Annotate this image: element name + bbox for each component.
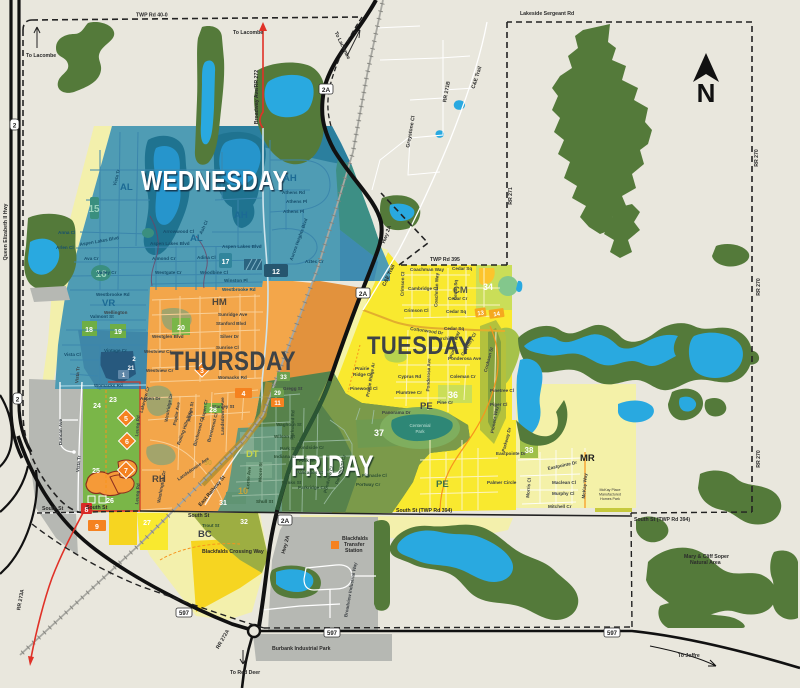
svg-text:Aspen Lakes Blvd: Aspen Lakes Blvd — [150, 241, 190, 246]
svg-text:23: 23 — [109, 397, 117, 404]
svg-text:Centennial: Centennial — [410, 423, 431, 428]
svg-text:RR 271: RR 271 — [508, 187, 514, 205]
svg-text:TWP Rd 395: TWP Rd 395 — [430, 257, 460, 263]
svg-text:Manufactured: Manufactured — [599, 493, 621, 497]
svg-text:18: 18 — [85, 327, 93, 334]
svg-text:Prairie: Prairie — [355, 366, 370, 371]
svg-text:Duncan Ave: Duncan Ave — [58, 418, 63, 445]
svg-text:Crimson Cl: Crimson Cl — [404, 308, 429, 313]
svg-text:Cyprus Rd: Cyprus Rd — [398, 374, 421, 379]
svg-text:Natural Area: Natural Area — [690, 560, 721, 566]
svg-text:Piper Cl: Piper Cl — [490, 402, 507, 407]
svg-text:2A: 2A — [322, 87, 331, 94]
svg-text:Park St: Park St — [299, 458, 315, 463]
svg-text:29: 29 — [274, 391, 281, 397]
svg-text:Athens Rd: Athens Rd — [282, 190, 305, 195]
svg-text:Pinetree Cl: Pinetree Cl — [490, 388, 514, 393]
svg-text:Mitchell Cr: Mitchell Cr — [548, 504, 572, 509]
svg-text:Indiana St: Indiana St — [274, 454, 296, 459]
svg-text:Arlen Cl: Arlen Cl — [56, 245, 74, 250]
svg-text:Landsdowne Ave: Landsdowne Ave — [220, 397, 225, 435]
svg-text:20: 20 — [177, 325, 185, 332]
svg-text:Shull St: Shull St — [256, 499, 274, 504]
svg-text:Sunridge Ave: Sunridge Ave — [218, 312, 248, 317]
svg-text:Westgate Cr: Westgate Cr — [155, 270, 182, 275]
svg-text:RR 270: RR 270 — [754, 149, 760, 167]
svg-text:2: 2 — [13, 123, 17, 130]
svg-text:Parkridge Cr: Parkridge Cr — [298, 485, 326, 490]
svg-text:Vista Cl: Vista Cl — [64, 352, 81, 357]
svg-text:McKay Place: McKay Place — [600, 488, 621, 492]
svg-text:Burbank Industrial Park: Burbank Industrial Park — [272, 646, 331, 652]
svg-text:Westview Cr: Westview Cr — [144, 349, 171, 354]
svg-text:Trout St: Trout St — [202, 523, 220, 528]
svg-text:25: 25 — [92, 468, 100, 475]
svg-text:To Red Deer: To Red Deer — [230, 670, 260, 676]
svg-text:Cedar Sq: Cedar Sq — [452, 266, 472, 271]
svg-text:Pinnacle Cl: Pinnacle Cl — [362, 473, 387, 478]
svg-text:Aspen Lakes Blvd: Aspen Lakes Blvd — [222, 244, 262, 249]
svg-text:Station: Station — [345, 548, 363, 554]
svg-text:Blackfalds Crossing Way: Blackfalds Crossing Way — [202, 549, 264, 555]
svg-text:Womacks Rd: Womacks Rd — [94, 383, 123, 388]
svg-text:Arrowwood Cl: Arrowwood Cl — [163, 229, 194, 234]
svg-text:597: 597 — [327, 631, 338, 637]
svg-text:South St: South St — [86, 505, 108, 511]
svg-text:26: 26 — [106, 498, 114, 505]
svg-text:Park St: Park St — [280, 446, 296, 451]
svg-text:TWP Rd 40-0: TWP Rd 40-0 — [136, 13, 168, 19]
svg-text:Athens Pl: Athens Pl — [286, 199, 307, 204]
svg-text:AH: AH — [234, 210, 248, 221]
svg-text:Coachman Way: Coachman Way — [410, 267, 444, 272]
svg-text:17: 17 — [222, 259, 230, 266]
svg-text:Palmer Circle: Palmer Circle — [487, 480, 517, 485]
svg-text:Valley Cr: Valley Cr — [97, 270, 117, 275]
svg-text:Silver Dr: Silver Dr — [220, 334, 239, 339]
svg-text:Pine Cr: Pine Cr — [437, 400, 453, 405]
svg-text:Westview Cr: Westview Cr — [146, 368, 173, 373]
svg-text:Cedar Sq: Cedar Sq — [453, 280, 459, 301]
svg-text:Athens Pl: Athens Pl — [283, 209, 304, 214]
svg-text:VR: VR — [102, 298, 115, 309]
svg-text:Westglen Blvd: Westglen Blvd — [152, 334, 184, 339]
svg-text:24: 24 — [93, 403, 101, 410]
svg-text:Plumtree Cr: Plumtree Cr — [396, 390, 422, 395]
svg-text:RR 270: RR 270 — [756, 278, 762, 296]
svg-text:Panorama Dr: Panorama Dr — [382, 410, 411, 415]
svg-text:36: 36 — [448, 390, 458, 400]
svg-text:THURSDAY: THURSDAY — [170, 346, 296, 376]
svg-text:Murphy Cl: Murphy Cl — [552, 491, 574, 496]
svg-text:Gregg St: Gregg St — [283, 386, 303, 391]
svg-text:To Joffre: To Joffre — [678, 653, 700, 659]
svg-text:To Lacombe: To Lacombe — [233, 30, 263, 36]
svg-text:Pondside Cr: Pondside Cr — [297, 445, 324, 450]
svg-text:To Lacombe: To Lacombe — [26, 53, 56, 59]
svg-text:597: 597 — [607, 631, 618, 637]
svg-text:Queen Elizabeth II Hwy: Queen Elizabeth II Hwy — [3, 203, 9, 260]
svg-text:9: 9 — [95, 524, 99, 531]
svg-text:2A: 2A — [281, 518, 290, 525]
svg-text:MR: MR — [580, 453, 595, 464]
svg-text:Portway Cr: Portway Cr — [356, 482, 380, 487]
svg-text:Cedar Cr: Cedar Cr — [448, 296, 468, 301]
svg-text:27: 27 — [143, 520, 151, 527]
svg-text:Maclean Cl: Maclean Cl — [552, 480, 576, 485]
svg-text:PE: PE — [420, 401, 433, 412]
svg-text:DT: DT — [246, 449, 259, 460]
svg-text:Aztec Cr: Aztec Cr — [305, 259, 324, 264]
svg-text:Anna Cl: Anna Cl — [58, 230, 75, 235]
svg-text:N: N — [697, 78, 716, 108]
svg-text:Crimson Cl: Crimson Cl — [400, 272, 406, 297]
svg-text:Vintage Cr: Vintage Cr — [104, 348, 127, 353]
svg-text:Winston Pl: Winston Pl — [224, 278, 248, 283]
svg-text:Womacks Rd: Womacks Rd — [218, 375, 247, 380]
svg-text:WEDNESDAY: WEDNESDAY — [141, 165, 288, 196]
svg-text:19: 19 — [114, 329, 122, 336]
svg-text:AL: AL — [120, 182, 133, 193]
svg-text:South St (TWP Rd 394): South St (TWP Rd 394) — [634, 517, 690, 523]
svg-text:South St (TWP Rd 394): South St (TWP Rd 394) — [396, 508, 452, 514]
svg-text:37: 37 — [374, 428, 384, 438]
svg-text:31: 31 — [219, 500, 227, 507]
svg-text:12: 12 — [272, 269, 280, 276]
svg-text:Cedar Sq: Cedar Sq — [444, 326, 464, 331]
svg-text:Ridge Cl: Ridge Cl — [353, 372, 372, 377]
svg-text:7: 7 — [124, 468, 128, 475]
svg-text:RR 270: RR 270 — [756, 450, 762, 468]
svg-text:Broadway Ave/RR 272: Broadway Ave/RR 272 — [254, 70, 260, 125]
svg-text:15: 15 — [88, 204, 100, 215]
svg-text:Adina Cl: Adina Cl — [197, 255, 216, 260]
svg-text:South St: South St — [42, 506, 64, 512]
svg-text:Cedar Sq: Cedar Sq — [446, 309, 466, 314]
svg-text:4: 4 — [242, 391, 246, 398]
svg-text:Parkwood Rd: Parkwood Rd — [289, 410, 295, 440]
svg-text:FRIDAY: FRIDAY — [291, 450, 374, 483]
svg-text:South St: South St — [188, 513, 210, 519]
svg-text:Woodbine Cl: Woodbine Cl — [200, 270, 228, 275]
svg-text:Park: Park — [415, 429, 425, 434]
svg-text:HM: HM — [212, 297, 227, 308]
svg-text:Palisades St: Palisades St — [296, 470, 324, 475]
svg-text:Coleman Cr: Coleman Cr — [450, 374, 476, 379]
svg-text:2A: 2A — [359, 291, 368, 298]
svg-text:Almond Cr: Almond Cr — [152, 256, 176, 261]
svg-text:Lakeside Sergeant Rd: Lakeside Sergeant Rd — [520, 11, 574, 17]
svg-text:Stanford Blvd: Stanford Blvd — [216, 321, 246, 326]
svg-text:Pinewood Cl: Pinewood Cl — [350, 386, 378, 391]
svg-text:Wellington: Wellington — [104, 310, 128, 315]
svg-text:Sunrise Cl: Sunrise Cl — [216, 345, 239, 350]
svg-text:Homes Park: Homes Park — [600, 497, 620, 501]
svg-text:BC: BC — [198, 529, 212, 540]
svg-text:Ava Cr: Ava Cr — [84, 256, 99, 261]
svg-text:Westbrooke Rd: Westbrooke Rd — [222, 287, 256, 292]
svg-text:34: 34 — [483, 282, 493, 292]
svg-text:Westbrooke Rd: Westbrooke Rd — [96, 292, 130, 297]
svg-text:11: 11 — [274, 401, 281, 407]
svg-text:6: 6 — [125, 439, 129, 446]
svg-text:32: 32 — [240, 519, 248, 526]
svg-text:PE: PE — [436, 479, 449, 490]
svg-text:AH: AH — [283, 173, 297, 184]
svg-text:5: 5 — [124, 416, 128, 423]
svg-text:Moore St: Moore St — [258, 462, 264, 482]
svg-text:2: 2 — [16, 397, 20, 404]
svg-text:38: 38 — [525, 446, 534, 455]
svg-text:597: 597 — [179, 611, 190, 617]
